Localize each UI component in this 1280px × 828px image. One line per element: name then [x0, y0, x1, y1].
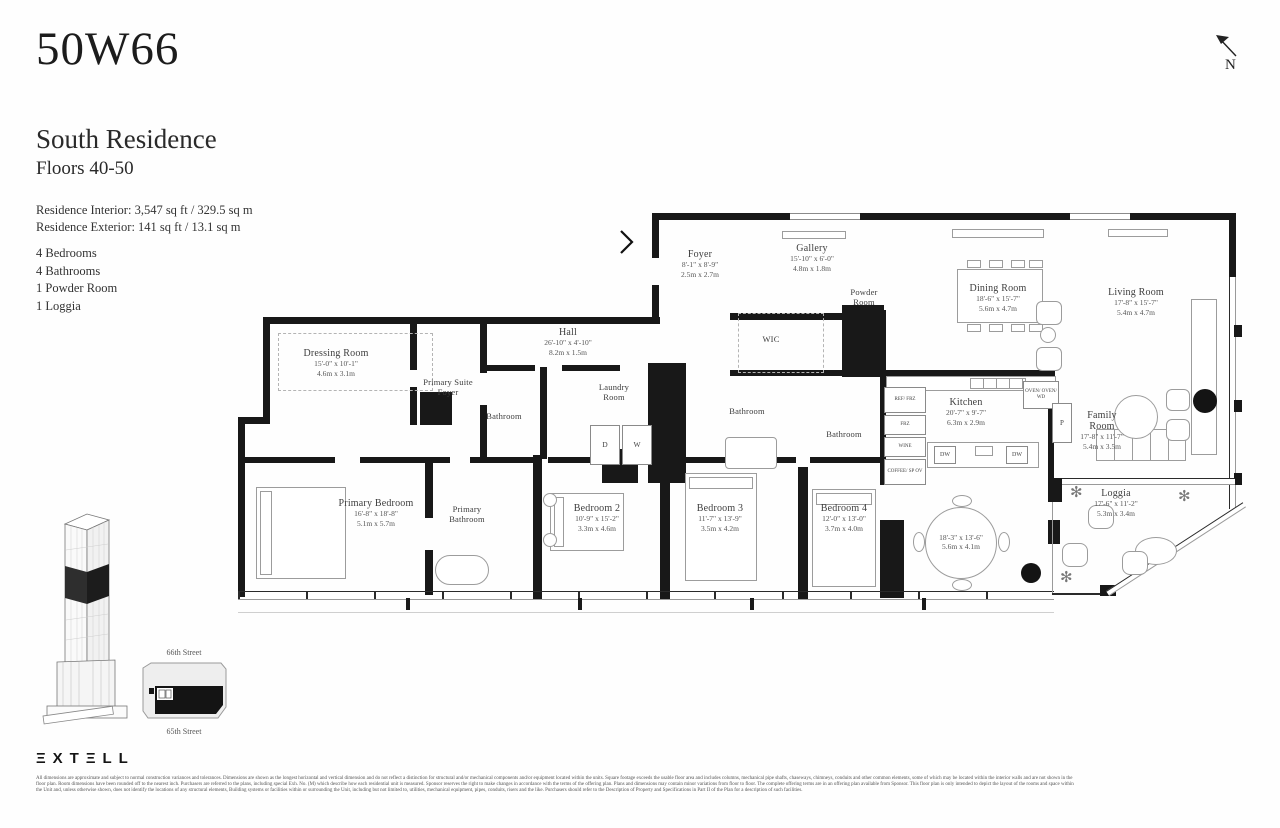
furniture-chair [998, 532, 1010, 552]
furniture-armchair [1166, 419, 1190, 441]
window-segment [790, 213, 860, 220]
room-label-wic: WIC [762, 335, 779, 345]
feature-loggia: 1 Loggia [36, 298, 117, 316]
furniture-side-table [1040, 327, 1056, 343]
wall-segment [240, 457, 335, 463]
wall-segment [652, 285, 659, 317]
loggia-pier [1048, 478, 1062, 502]
disclaimer-line: the Unit and, unless otherwise shown, do… [36, 788, 1244, 794]
appliance-ref-frz: REF/ FRZ [884, 387, 926, 413]
room-label-family-room: Family Room 17'-8" x 11'-7" 5.4m x 3.5m [1076, 410, 1128, 451]
furniture-chair [989, 260, 1003, 268]
slab-edge [238, 612, 1054, 613]
furniture-chair [952, 579, 972, 591]
feature-bedrooms: 4 Bedrooms [36, 245, 117, 263]
wall-segment [1229, 213, 1236, 277]
plant-icon: ✻ [1070, 486, 1083, 501]
room-label-foyer: Foyer 8'-1" x 8'-9" 2.5m x 2.7m [681, 249, 719, 279]
furniture-console [782, 231, 846, 239]
residence-title: South Residence [36, 124, 217, 155]
furniture-console [1108, 229, 1168, 237]
wall-segment [652, 213, 659, 258]
furniture-sofa [1191, 299, 1217, 455]
wall-segment [798, 467, 808, 599]
room-label-bathroom-3: Bathroom [729, 407, 765, 417]
furniture-pillows [260, 491, 272, 575]
key-plan-map [139, 660, 229, 722]
room-label-bathroom-2: Bathroom [486, 412, 522, 422]
furniture-chair [952, 495, 972, 507]
room-label-bedroom-2: Bedroom 2 10'-9" x 15'-2" 3.3m x 4.6m [574, 503, 621, 533]
furniture-chair [967, 260, 981, 268]
pantry-label: P [1052, 403, 1072, 443]
interior-area: Residence Interior: 3,547 sq ft / 329.5 … [36, 202, 253, 219]
room-label-loggia: Loggia 17'-6" x 11'-2" 5.3m x 3.4m [1094, 488, 1138, 518]
key-plan: 66th Street 65th Street [134, 648, 234, 736]
room-label-dining-room: Dining Room 18'-6" x 15'-7" 5.6m x 4.7m [970, 283, 1027, 313]
room-label-primary-bedroom: Primary Bedroom 16'-8" x 18'-8" 5.1m x 5… [333, 498, 419, 528]
room-label-bedroom-4: Bedroom 4 12'-0" x 13'-0" 3.7m x 4.0m [821, 503, 868, 533]
room-label-living-room: Living Room 17'-8" x 15'-7" 5.4m x 4.7m [1108, 287, 1164, 317]
wall-segment [238, 417, 245, 597]
bathtub [725, 437, 777, 469]
appliance-washer: W [622, 425, 652, 465]
plant-icon: ✻ [1178, 490, 1191, 505]
building-illustration [35, 510, 135, 737]
wall-segment [425, 550, 433, 595]
wall-segment [810, 457, 882, 463]
wall-segment [655, 213, 1236, 220]
furniture-chair [967, 324, 981, 332]
appliance-wine: WINE [884, 437, 926, 457]
furniture-chair [913, 532, 925, 552]
furniture-chair [989, 324, 1003, 332]
appliance-coffee: COFFEE/ SP OV [884, 459, 926, 485]
building-logo: 50W66 [36, 22, 179, 76]
exterior-area: Residence Exterior: 141 sq ft / 13.1 sq … [36, 219, 253, 236]
room-label-dressing-room: Dressing Room 15'-0" x 10'-1" 4.6m x 3.1… [303, 348, 368, 378]
window-segment [1070, 213, 1130, 220]
wall-segment [263, 317, 660, 324]
plant-icon: ✻ [1060, 571, 1073, 586]
loggia-edge [1052, 502, 1053, 594]
closet-outline [738, 313, 824, 373]
wall-segment [480, 365, 535, 371]
extell-logo: ΞXTΞLL [36, 750, 135, 767]
north-arrow-icon: N [1206, 26, 1250, 79]
furniture-lounge-chair [1062, 543, 1088, 567]
room-label-bathroom-4: Bathroom [826, 430, 862, 440]
appliance-dryer: D [590, 425, 620, 465]
furniture-armchair [1036, 301, 1062, 325]
furniture-lounge-chair [1122, 551, 1148, 575]
furniture-armchair [1036, 347, 1062, 371]
entry-arrow-icon [618, 228, 636, 261]
area-stats: Residence Interior: 3,547 sq ft / 329.5 … [36, 202, 253, 236]
room-label-kitchen: Kitchen 20'-7" x 9'-7" 6.3m x 2.9m [946, 397, 986, 427]
room-label-laundry-room: Laundry Room [588, 383, 640, 402]
loggia-pier [1048, 520, 1060, 544]
room-label-powder-room: Powder Room [841, 288, 887, 307]
service-core [648, 363, 686, 483]
furniture-chair [1011, 260, 1025, 268]
room-label-primary-bathroom: Primary Bathroom [434, 505, 500, 524]
service-core [880, 520, 904, 598]
furniture-armchair [1166, 389, 1190, 411]
structural-column [1193, 389, 1217, 413]
floor-plan: ✻ ✻ ✻ REF/ FRZ FRZ WINE COFFEE/ SP OV OV… [230, 205, 1265, 625]
legal-disclaimer: All dimensions are approximate and subje… [36, 776, 1244, 794]
wall-segment [540, 367, 547, 459]
furniture-chair [1011, 324, 1025, 332]
wall-segment [533, 455, 542, 599]
feature-powder: 1 Powder Room [36, 280, 117, 298]
room-label-gallery: Gallery 15'-10" x 6'-0" 4.8m x 1.8m [790, 243, 834, 273]
balcony-bracket [1234, 400, 1242, 412]
svg-text:N: N [1225, 57, 1236, 73]
appliance-frz: FRZ [884, 415, 926, 435]
balcony-bracket [1234, 473, 1242, 485]
wall-segment [360, 457, 450, 463]
feature-list: 4 Bedrooms 4 Bathrooms 1 Powder Room 1 L… [36, 245, 117, 315]
wall-segment [660, 467, 670, 599]
floors-subtitle: Floors 40-50 [36, 158, 134, 180]
room-label-hall: Hall 26'-10" x 4'-10" 8.2m x 1.5m [544, 327, 592, 357]
sink-basin [543, 493, 557, 507]
furniture-chair [1029, 260, 1043, 268]
room-label-bedroom-3: Bedroom 3 11'-7" x 13'-9" 3.5m x 4.2m [697, 503, 744, 533]
room-label-primary-suite-foyer: Primary Suite Foyer [422, 378, 474, 397]
sink-basin [543, 533, 557, 547]
feature-bathrooms: 4 Bathrooms [36, 263, 117, 281]
bathtub [435, 555, 489, 585]
kitchen-cooktop [970, 378, 1026, 389]
wall-segment [562, 365, 620, 371]
appliance-dishwasher: DW [934, 446, 956, 464]
loggia-window-wall [1052, 478, 1235, 485]
wall-segment [410, 387, 417, 425]
structural-column [1021, 563, 1041, 583]
kitchen-sink [975, 446, 993, 456]
wall-segment [425, 463, 433, 518]
wall-segment [263, 317, 270, 424]
wall-segment [480, 323, 487, 373]
window-mullion-feet [238, 598, 1054, 610]
street-label-top: 66th Street [134, 648, 234, 657]
room-label-breakfast-area: 18'-3" x 13'-6" 5.6m x 4.1m [939, 533, 983, 552]
balcony-bracket [1234, 325, 1242, 337]
floorplan-page: 50W66 South Residence Floors 40-50 Resid… [0, 0, 1280, 828]
furniture-pillows [689, 477, 753, 489]
appliance-dishwasher: DW [1006, 446, 1028, 464]
street-label-bottom: 65th Street [134, 727, 234, 736]
furniture-console [952, 229, 1044, 238]
